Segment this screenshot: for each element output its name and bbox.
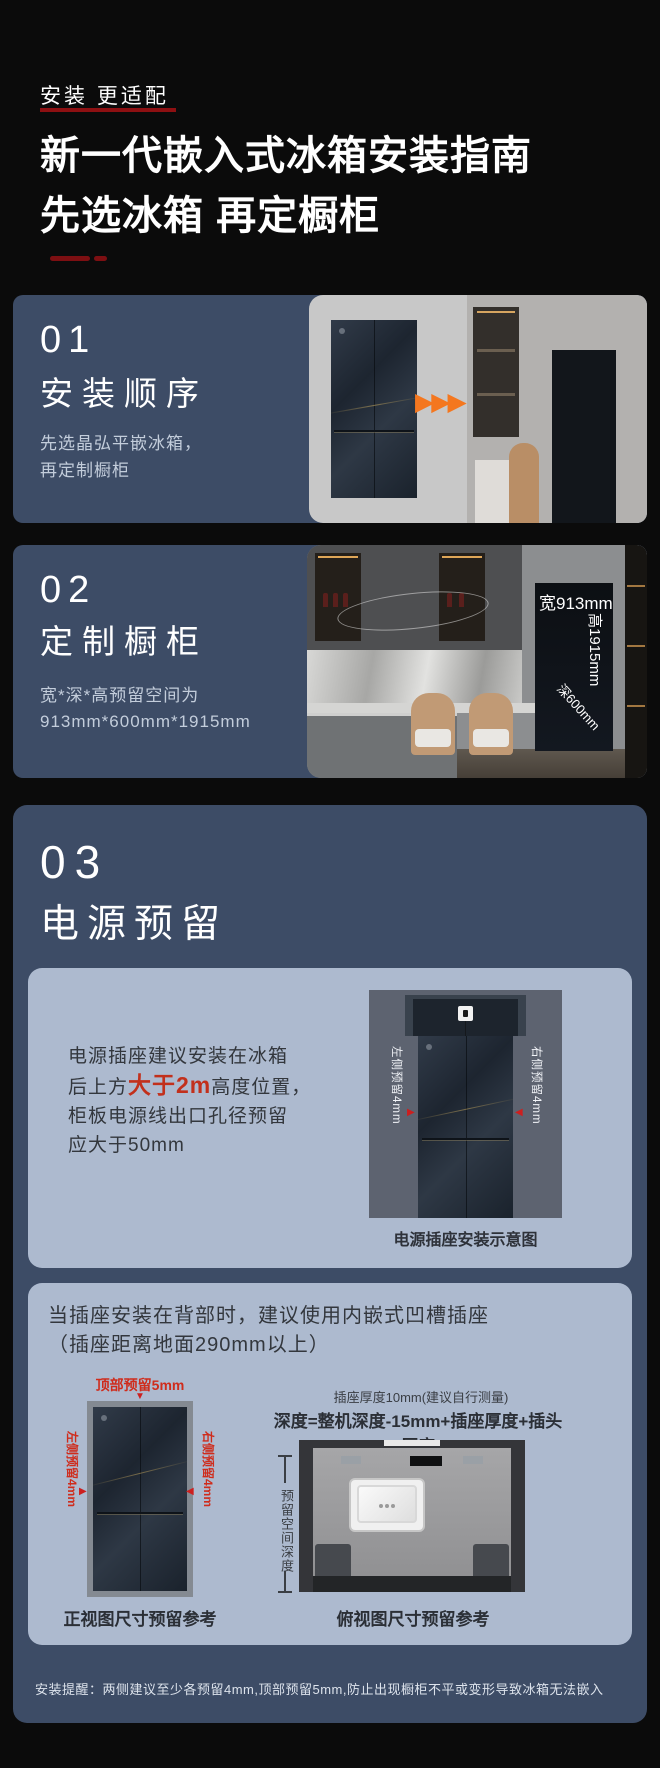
recessed-socket-card: 当插座安装在背部时，建议使用内嵌式凹槽插座 （插座距离地面290mm以上） 顶部… — [28, 1283, 632, 1645]
step2-card: 02 定制橱柜 宽*深*高预留空间为 913mm*600mm*1915mm — [13, 545, 647, 778]
niche-light — [442, 556, 482, 558]
header-tagline: 安装 更适配 — [40, 80, 169, 110]
wine-bottle — [323, 593, 328, 607]
chair-seat — [415, 729, 451, 747]
top-white-strip — [384, 1440, 440, 1446]
arrow-left-marker-icon: ◀ — [186, 1487, 194, 1497]
wine-cabinet — [473, 307, 519, 437]
fridge-diagram — [418, 1036, 513, 1218]
socket-text-line4: 应大于50mm — [68, 1131, 311, 1160]
wine-bottle — [333, 593, 338, 607]
arrow-left-marker-icon: ◀ — [515, 1108, 523, 1118]
fridge-handle — [334, 430, 413, 432]
step1-desc-line2: 再定制橱柜 — [40, 456, 130, 481]
step3-section: 03 电源预留 电源插座建议安装在冰箱 后上方大于2m高度位置， 柜板电源线出口… — [13, 805, 647, 1723]
front-view-frame — [87, 1401, 193, 1597]
fridge-door-split — [374, 320, 375, 498]
step3-number: 03 — [40, 835, 109, 889]
front-view-caption: 正视图尺寸预留参考 — [40, 1605, 240, 1630]
upper-cabinets — [307, 545, 522, 650]
wine-bottle — [343, 593, 348, 607]
fridge-door-split — [140, 1407, 141, 1591]
wine-shelf — [477, 393, 515, 396]
step1-desc-line1: 先选晶弘平嵌冰箱， — [40, 429, 202, 454]
arrow-right-marker-icon: ▶ — [79, 1487, 87, 1497]
dark-doorway — [552, 350, 616, 523]
quote-dash — [50, 256, 90, 261]
depth-bracket-bottom — [278, 1591, 292, 1593]
arrow-right-marker-icon: ▶ — [407, 1108, 415, 1118]
socket-placement-card: 电源插座建议安装在冰箱 后上方大于2m高度位置， 柜板电源线出口孔径预留 应大于… — [28, 968, 632, 1268]
shelf-light — [627, 585, 645, 587]
depth-space-label: 预留空间深度 — [277, 1489, 296, 1573]
fridge-top-view — [313, 1448, 511, 1592]
step3-title: 电源预留 — [40, 893, 228, 949]
niche-light — [318, 556, 358, 558]
chair-seat — [473, 729, 509, 747]
front-dark-band — [313, 1576, 511, 1592]
socket-diagram-caption: 电源插座安装示意图 — [369, 1226, 562, 1250]
step2-desc-line2: 913mm*600mm*1915mm — [40, 712, 251, 732]
left-clearance-label: 左侧预留4mm — [389, 1046, 405, 1125]
socket-plug — [463, 1010, 468, 1017]
shelf-light — [627, 645, 645, 647]
cabinet-light — [477, 311, 515, 313]
fridge-handle — [97, 1512, 183, 1514]
step2-number: 02 — [40, 569, 96, 612]
recessed-title-line1: 当插座安装在背部时，建议使用内嵌式凹槽插座 — [48, 1299, 489, 1328]
page-title-line2: 先选冰箱 再定橱柜 — [40, 186, 532, 246]
top-view-frame — [299, 1440, 525, 1592]
power-socket-icon — [458, 1006, 473, 1021]
height-requirement-highlight: 大于2m — [128, 1072, 211, 1098]
socket-hole — [391, 1504, 395, 1508]
page-title: 新一代嵌入式冰箱安装指南 先选冰箱 再定橱柜 — [40, 126, 532, 246]
socket-hole — [379, 1504, 383, 1508]
brand-logo-dot — [339, 328, 345, 334]
quote-dash — [94, 256, 107, 261]
mounting-clip — [341, 1456, 361, 1464]
depth-bracket-line — [284, 1455, 286, 1483]
step2-photo: 宽913mm 高1915mm 深600mm — [307, 545, 647, 778]
niche-height-label: 高1915mm — [585, 613, 606, 686]
step2-desc-line1: 宽*深*高预留空间为 — [40, 681, 199, 706]
bar-chair — [469, 693, 513, 755]
socket-thickness-note: 插座厚度10mm(建议自行测量) — [296, 1387, 546, 1406]
tagline-underline — [40, 108, 176, 112]
kitchen-scene — [467, 295, 647, 523]
socket-install-diagram: 左侧预留4mm ▶ 右侧预留4mm ◀ — [369, 990, 562, 1218]
depth-bracket-line — [284, 1571, 286, 1593]
bar-chair — [509, 443, 539, 523]
recessed-title-line2: （插座距离地面290mm以上） — [48, 1328, 330, 1357]
socket-text-line1: 电源插座建议安装在冰箱 — [68, 1042, 311, 1071]
display-shelf-column — [625, 545, 647, 778]
fridge-front-view — [93, 1407, 187, 1591]
top-notch — [410, 1456, 442, 1466]
socket-placement-text: 电源插座建议安装在冰箱 后上方大于2m高度位置， 柜板电源线出口孔径预留 应大于… — [68, 1042, 311, 1160]
mounting-clip — [463, 1456, 483, 1464]
recessed-socket-plate — [349, 1478, 425, 1532]
fridge-handle — [422, 1138, 509, 1140]
fridge-image — [331, 320, 417, 498]
right-clearance-label: 右侧预留4mm — [200, 1431, 217, 1507]
socket-text-line2: 后上方大于2m高度位置， — [68, 1071, 311, 1102]
power-cord — [465, 1021, 466, 1037]
right-clearance-label: 右侧预留4mm — [529, 1046, 545, 1125]
socket-hole — [385, 1504, 389, 1508]
brand-logo-dot — [101, 1415, 107, 1421]
niche-width-label: 宽913mm — [539, 589, 613, 614]
top-view-caption: 俯视图尺寸预留参考 — [313, 1605, 513, 1630]
step1-photo: ▶▶▶ — [309, 295, 647, 523]
wine-shelf — [477, 349, 515, 352]
fridge-door-split — [466, 1036, 467, 1218]
brand-logo-dot — [426, 1044, 432, 1050]
step1-number: 01 — [40, 319, 96, 362]
bar-chair — [411, 693, 455, 755]
socket-text-line3: 柜板电源线出口孔径预留 — [68, 1102, 311, 1131]
step1-card: 01 安装顺序 先选晶弘平嵌冰箱， 再定制橱柜 ▶▶▶ — [13, 295, 647, 523]
step2-title: 定制橱柜 — [40, 615, 208, 663]
arrow-right-icons: ▶▶▶ — [415, 387, 464, 417]
page-title-line1: 新一代嵌入式冰箱安装指南 — [40, 126, 532, 186]
page: 安装 更适配 新一代嵌入式冰箱安装指南 先选冰箱 再定橱柜 01 安装顺序 先选… — [0, 0, 660, 1768]
shelf-light — [627, 705, 645, 707]
install-reminder-note: 安装提醒：两侧建议至少各预留4mm,顶部预留5mm,防止出现橱柜不平或变形导致冰… — [35, 1679, 604, 1698]
step1-title: 安装顺序 — [40, 367, 208, 415]
